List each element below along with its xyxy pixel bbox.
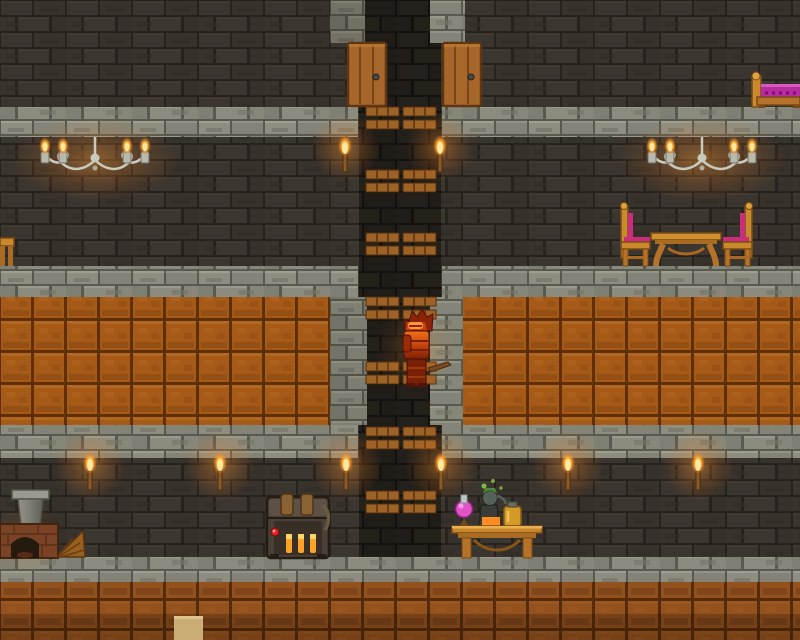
chandelier-finial <box>700 166 705 171</box>
metal-chest[interactable] <box>267 494 329 558</box>
table-leg <box>462 538 471 558</box>
bottom-ore-shade <box>0 614 800 640</box>
floor-3-right <box>442 425 800 458</box>
player-legs <box>407 359 426 386</box>
table-apron <box>458 533 536 538</box>
top-column-left-shade <box>330 0 365 43</box>
furnace-chimney-rim <box>12 490 49 499</box>
mid-column-left-shade <box>330 297 367 425</box>
still-liquid <box>482 517 500 526</box>
chandelier-center <box>91 154 100 163</box>
player-arm <box>403 335 411 352</box>
chandelier-finial <box>93 166 98 171</box>
floor-2-left <box>0 266 358 297</box>
chest-indicator-spec <box>273 530 276 533</box>
chest-strap <box>281 494 293 515</box>
door-handle-icon <box>373 74 379 80</box>
chest-strap <box>301 494 313 515</box>
table-top-trim <box>452 526 542 529</box>
chandelier-left <box>10 118 180 202</box>
torch <box>311 114 379 182</box>
jar-cap <box>508 502 517 507</box>
ore-band-left <box>0 297 330 425</box>
chest-indicator-light <box>271 528 279 536</box>
game-viewport <box>0 0 800 640</box>
torch <box>662 429 734 501</box>
wooden-door-left[interactable] <box>348 43 386 106</box>
bed-blanket-highlight <box>761 84 800 87</box>
torch <box>532 429 604 501</box>
top-column-right <box>430 0 465 43</box>
flask-highlight <box>459 504 464 509</box>
still-bulb <box>483 491 498 506</box>
game-scene <box>0 0 800 640</box>
sand-block <box>174 616 203 640</box>
table-leg <box>523 538 532 558</box>
chair-rung <box>626 256 645 259</box>
door-handle-icon <box>468 74 474 80</box>
chandelier-center <box>698 154 707 163</box>
torch <box>54 429 126 501</box>
floor-4 <box>0 557 800 582</box>
door-top-highlight <box>444 44 480 47</box>
door-top-highlight <box>349 44 385 47</box>
bed-post-knob <box>752 72 760 80</box>
chandelier-right <box>617 118 787 202</box>
table-apron <box>655 240 717 244</box>
chair-rung <box>729 256 748 259</box>
torch <box>406 114 474 182</box>
torch <box>405 429 477 501</box>
player-character <box>374 306 458 390</box>
chest-vents <box>286 534 316 553</box>
torch <box>310 429 382 501</box>
sand-block-highlight <box>174 616 203 619</box>
amber-jar <box>504 502 521 527</box>
torch <box>184 429 256 501</box>
flask-neck <box>461 495 467 503</box>
floor-2-right <box>442 266 800 297</box>
furnace-ember <box>17 552 33 558</box>
ore-band-right <box>463 297 800 425</box>
furnace-chimney <box>18 499 43 525</box>
chest-lid <box>269 499 327 516</box>
floor-3-left <box>0 425 358 458</box>
wooden-door-right[interactable] <box>443 43 481 106</box>
